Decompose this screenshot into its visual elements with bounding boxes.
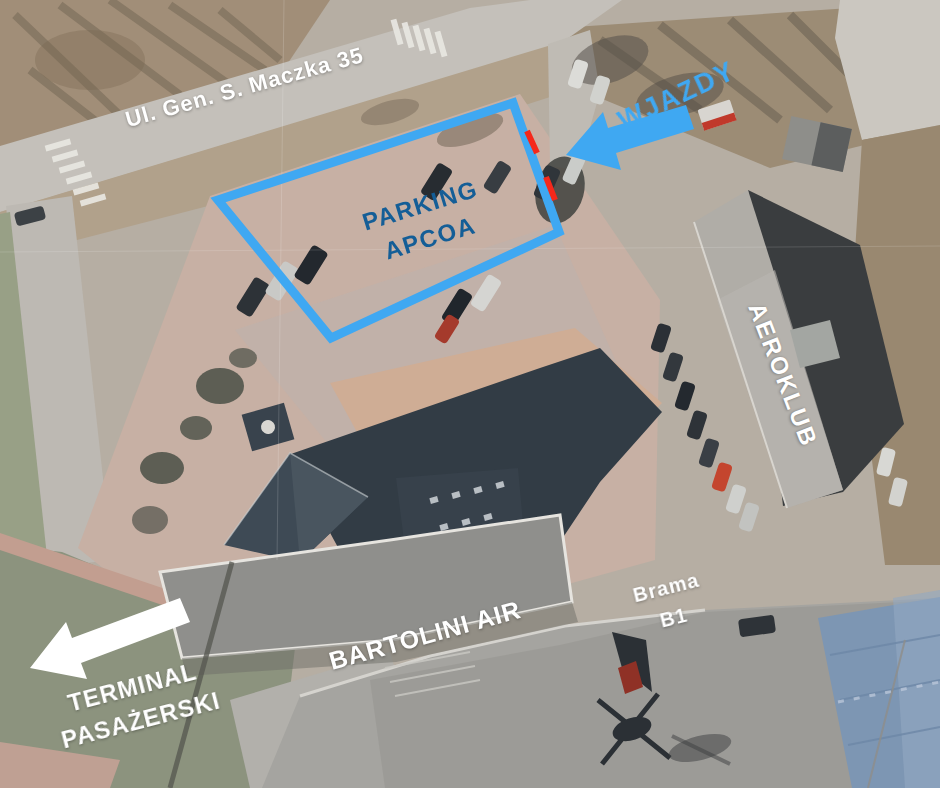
map-canvas: Ul. Gen. S. Maczka 35 WJAZDY PARKING APC… <box>0 0 940 788</box>
tree-mass <box>35 30 145 90</box>
